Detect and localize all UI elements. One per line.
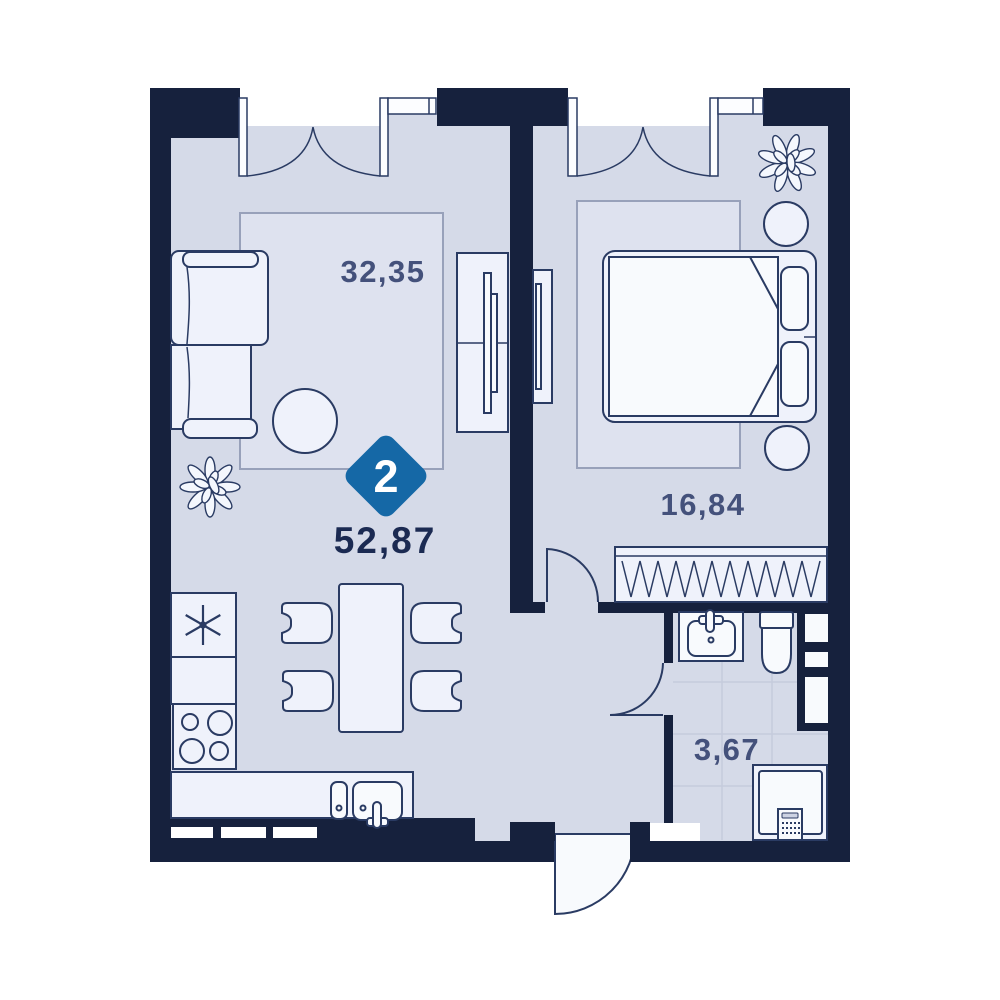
toilet xyxy=(760,612,793,673)
window-jamb xyxy=(380,98,388,176)
low-window-slit xyxy=(273,827,317,838)
living-room-area-label: 32,35 xyxy=(340,254,425,289)
bathroom-area-label: 3,67 xyxy=(694,732,760,767)
low-window-slit xyxy=(171,827,213,838)
pillow xyxy=(781,342,808,406)
tv xyxy=(484,273,491,413)
bathroom-sink xyxy=(679,610,743,661)
kitchen-cabinet xyxy=(171,657,236,704)
pillow xyxy=(781,267,808,330)
washing-machine xyxy=(753,765,827,840)
tv-stand xyxy=(457,253,508,432)
living-room-rug xyxy=(240,213,443,469)
window-jamb xyxy=(568,98,577,176)
coffee-table xyxy=(273,389,337,453)
bedroom-area-label: 16,84 xyxy=(660,487,745,522)
plant-icon xyxy=(180,457,240,517)
total-area-label: 52,87 xyxy=(334,520,437,561)
shaft-niche xyxy=(805,652,828,667)
entrance-door xyxy=(555,834,635,914)
shaft-niche xyxy=(805,614,828,642)
window-jamb xyxy=(710,98,718,176)
bed xyxy=(603,251,816,422)
shaft-niche xyxy=(805,677,828,723)
stove xyxy=(173,704,236,769)
threshold-niche xyxy=(650,823,700,841)
window-fixed-pane xyxy=(718,98,763,114)
window-jamb xyxy=(239,98,247,176)
badge-number: 2 xyxy=(373,451,398,502)
wardrobe xyxy=(615,547,827,602)
floor-plan: 32,35 16,84 3,67 2 52,87 xyxy=(0,0,1000,1000)
nightstand xyxy=(764,202,808,246)
dining-table xyxy=(339,584,403,732)
tv xyxy=(536,284,541,389)
nightstand xyxy=(765,426,809,470)
bedroom-tv-panel xyxy=(533,270,552,403)
low-window-slit xyxy=(221,827,266,838)
